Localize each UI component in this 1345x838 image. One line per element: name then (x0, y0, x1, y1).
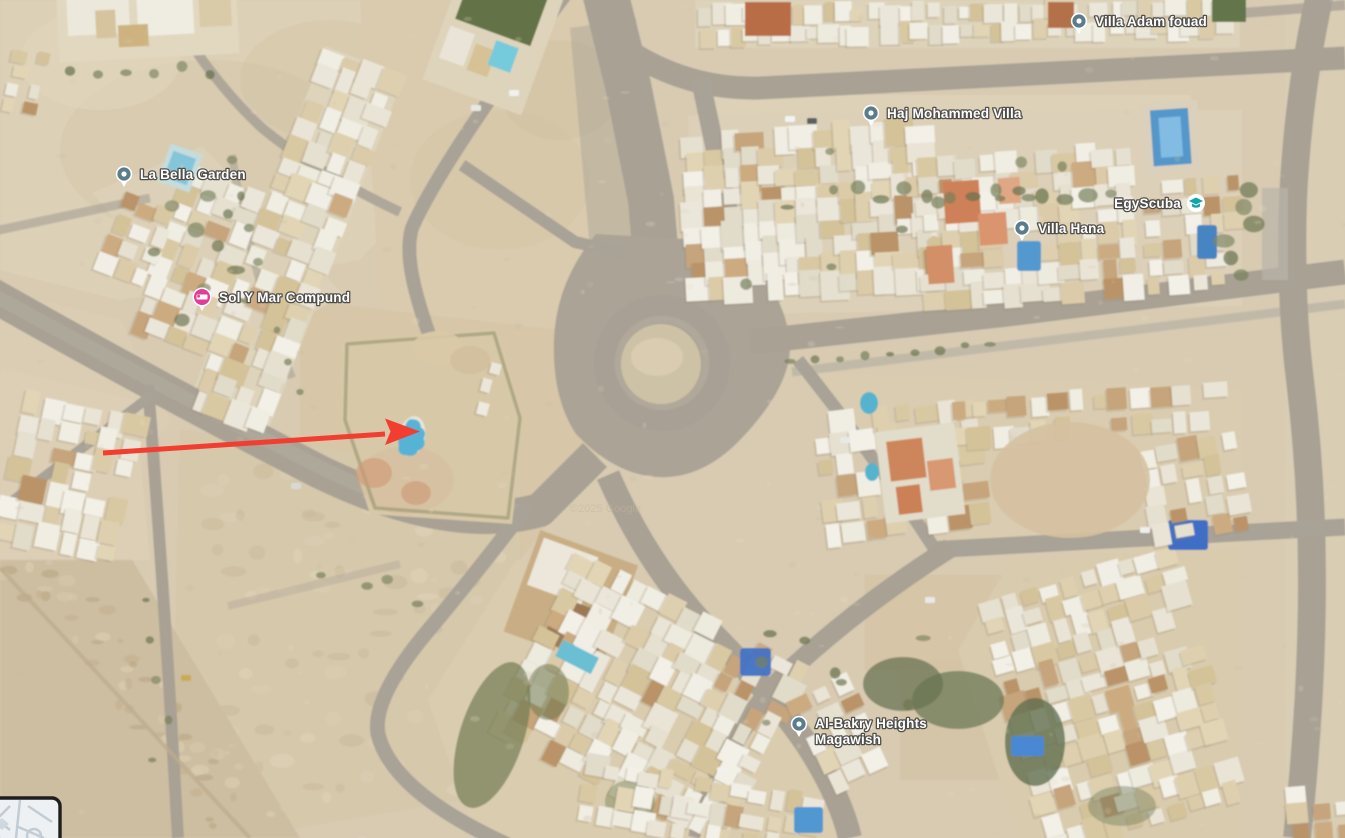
svg-text:©2025 Google: ©2025 Google (570, 503, 641, 515)
svg-text:Sol Y Mar Compund: Sol Y Mar Compund (219, 290, 350, 305)
svg-text:Haj Mohammed Villa: Haj Mohammed Villa (887, 106, 1022, 121)
svg-text:Al-Bakry Heights: Al-Bakry Heights (815, 716, 927, 731)
svg-text:EgyScuba: EgyScuba (1114, 196, 1181, 211)
svg-text:Imagery ©2025 Google: Imagery ©2025 Google (620, 432, 724, 443)
svg-text:Magawish: Magawish (815, 732, 881, 747)
svg-text:La Bella Garden: La Bella Garden (140, 167, 246, 182)
svg-text:Villa Adam fouad: Villa Adam fouad (1095, 14, 1207, 29)
svg-text:Villa Hana: Villa Hana (1038, 221, 1105, 236)
